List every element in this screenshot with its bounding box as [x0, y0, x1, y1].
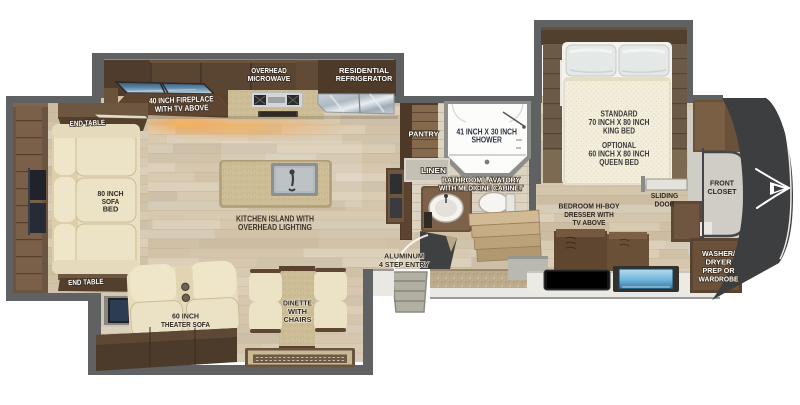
svg-text:KING BED: KING BED — [603, 127, 635, 136]
svg-text:OVERHEAD LIGHTING: OVERHEAD LIGHTING — [238, 223, 312, 232]
svg-text:QUEEN BED: QUEEN BED — [599, 158, 639, 167]
svg-text:REFRIGERATOR: REFRIGERATOR — [336, 74, 393, 83]
svg-text:WITH TV ABOVE: WITH TV ABOVE — [155, 103, 210, 114]
svg-text:4 STEP ENTRY: 4 STEP ENTRY — [379, 260, 429, 269]
svg-text:PANTRY: PANTRY — [409, 130, 439, 139]
svg-text:DOOR: DOOR — [655, 200, 676, 209]
svg-text:LINEN: LINEN — [421, 166, 446, 175]
svg-text:END TABLE: END TABLE — [70, 118, 106, 128]
svg-text:CHAIRS: CHAIRS — [284, 315, 312, 324]
svg-text:BED: BED — [103, 205, 119, 214]
svg-text:TV ABOVE: TV ABOVE — [573, 218, 606, 227]
svg-text:SHOWER: SHOWER — [471, 136, 502, 145]
svg-text:CLOSET: CLOSET — [708, 187, 737, 196]
svg-text:WARDROBE: WARDROBE — [699, 275, 739, 284]
svg-text:WITH MEDICINE CABINET: WITH MEDICINE CABINET — [439, 184, 523, 193]
svg-text:MICROWAVE: MICROWAVE — [248, 74, 291, 83]
svg-text:THEATER SOFA: THEATER SOFA — [161, 320, 210, 329]
svg-text:END TABLE: END TABLE — [68, 277, 104, 287]
